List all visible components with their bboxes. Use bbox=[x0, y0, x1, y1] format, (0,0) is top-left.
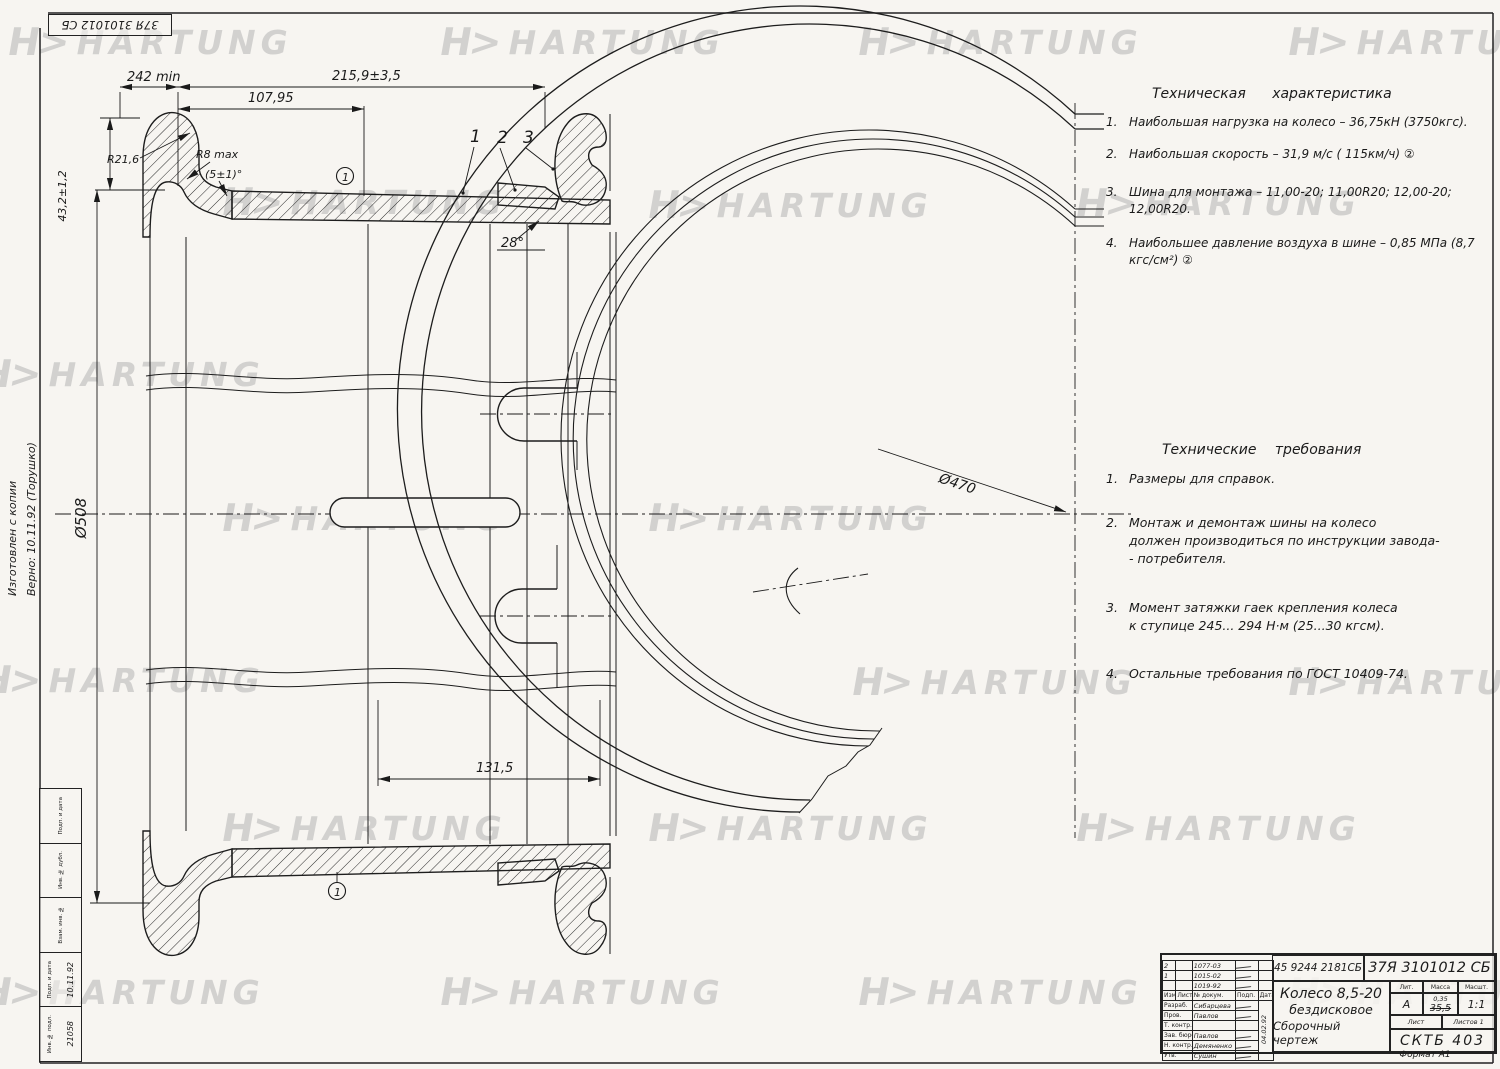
signature-scribble bbox=[1235, 981, 1254, 989]
margin-label: Инв. № подл. bbox=[47, 1015, 53, 1053]
sign-row: Пров. Павлов bbox=[1163, 1011, 1274, 1021]
callout-3: 3 bbox=[523, 128, 534, 148]
corner-designation-text: 37Я 3101012 СБ bbox=[61, 18, 158, 32]
revision-row: 1 1015-02 bbox=[1163, 971, 1274, 981]
dim-242: 242 min bbox=[127, 70, 180, 85]
doc-number: 45 9244 2181СБ bbox=[1274, 962, 1362, 974]
rev-izm bbox=[1163, 981, 1176, 991]
sign-role: Утв. bbox=[1163, 1051, 1193, 1061]
signature-scribble bbox=[1235, 1001, 1254, 1009]
item-text: Размеры для справок. bbox=[1129, 470, 1275, 488]
dim-432: 43,2±1,2 bbox=[56, 170, 69, 221]
title-block: 2 1077-03 1 1015-02 1019-92 Изм Лист № д… bbox=[1160, 953, 1497, 1054]
sign-name: Павлов bbox=[1192, 1011, 1235, 1021]
rev-doc: 1077-03 bbox=[1192, 961, 1235, 971]
sign-name: Павлов bbox=[1192, 1031, 1235, 1041]
margin-cell: Подп. и дата 10.11.92 bbox=[40, 953, 81, 1008]
callout-1: 1 bbox=[470, 127, 481, 147]
item-number: 1. bbox=[1106, 114, 1120, 131]
margin-stamp-column: Подп. и дата Инв. № дубл. Взам. инв. № П… bbox=[39, 788, 82, 1062]
tech-req-item: 1.Размеры для справок. bbox=[1106, 470, 1488, 488]
tech-requirements-title: Технические требования bbox=[1162, 442, 1488, 458]
item-number: 4. bbox=[1106, 665, 1120, 683]
dim-angle5: (5±1)° bbox=[205, 168, 242, 181]
valve-notch bbox=[786, 568, 800, 614]
sheet-cell: Лист bbox=[1390, 1015, 1442, 1029]
margin-cell: Инв. № дубл. bbox=[40, 844, 81, 899]
item-number: 3. bbox=[1106, 184, 1120, 219]
item-number: 3. bbox=[1106, 599, 1120, 635]
tech-req-item: 4.Остальные требования по ГОСТ 10409-74. bbox=[1106, 665, 1488, 683]
lit-value-cell: А bbox=[1390, 993, 1423, 1015]
designation: 37Я 3101012 СБ bbox=[1368, 960, 1490, 976]
mass-old-value: 0,35 bbox=[1433, 995, 1447, 1003]
dim-10795: 107,95 bbox=[248, 91, 294, 106]
rev-izm: 2 bbox=[1163, 961, 1176, 971]
note-line1: Изготовлен с копии bbox=[4, 324, 23, 596]
dim-508: Ø508 bbox=[72, 498, 90, 539]
tech-char-item: 1.Наибольшая нагрузка на колесо – 36,75к… bbox=[1106, 114, 1484, 131]
sign-role: Разраб. bbox=[1163, 1001, 1193, 1011]
item-number: 2. bbox=[1106, 146, 1120, 163]
rev-izm: 1 bbox=[1163, 971, 1176, 981]
rev-doc: 1015-02 bbox=[1192, 971, 1235, 981]
item-text: Остальные требования по ГОСТ 10409-74. bbox=[1129, 665, 1408, 683]
margin-cell: Подп. и дата bbox=[40, 789, 81, 844]
item-text: Наибольшая нагрузка на колесо – 36,75кН … bbox=[1129, 114, 1468, 131]
revision-signature-table: 2 1077-03 1 1015-02 1019-92 Изм Лист № д… bbox=[1162, 960, 1274, 1061]
doc-number-cell: 45 9244 2181СБ bbox=[1272, 955, 1364, 981]
sign-name bbox=[1192, 1021, 1235, 1031]
margin-sign-date: 10.11.92 bbox=[66, 962, 75, 998]
sign-role: Н. контр. bbox=[1163, 1041, 1193, 1051]
drawing-title-cell: Колесо 8,5-20 бездисковое Сборочный черт… bbox=[1272, 981, 1390, 1052]
margin-cell: Взам. инв. № bbox=[40, 898, 81, 953]
tech-req-item: 2.Монтаж и демонтаж шины на колесо долже… bbox=[1106, 514, 1488, 568]
sign-row: Зав. бюро Павлов bbox=[1163, 1031, 1274, 1041]
dim-angle28: 28° bbox=[501, 236, 524, 251]
margin-label: Подп. и дата bbox=[47, 961, 53, 998]
signature-scribble bbox=[1235, 1041, 1254, 1049]
copy-certification-note: Изготовлен с копии Верно: 10.11.92 (Тору… bbox=[4, 324, 48, 596]
signature-scribble bbox=[1235, 1031, 1254, 1039]
organization: СКТБ 403 bbox=[1400, 1033, 1485, 1049]
item-number: 1. bbox=[1106, 470, 1120, 488]
dim-r216: R21,6 bbox=[107, 153, 139, 166]
margin-cell: Инв. № подл. 21058 bbox=[40, 1007, 81, 1061]
sign-row: Н. контр. Демяненко bbox=[1163, 1041, 1274, 1051]
tech-req-item: 3.Момент затяжки гаек крепления колеса к… bbox=[1106, 599, 1488, 635]
revision-row: 2 1077-03 bbox=[1163, 961, 1274, 971]
lit-header: Лит. bbox=[1390, 981, 1423, 993]
margin-label: Взам. инв. № bbox=[58, 906, 64, 944]
vent-slot bbox=[330, 498, 520, 527]
mass-header: Масса bbox=[1423, 981, 1458, 993]
balloon-1-top: 1 bbox=[342, 171, 349, 184]
corner-designation-stamp: 37Я 3101012 СБ bbox=[48, 14, 172, 36]
lit-value: А bbox=[1403, 998, 1411, 1011]
hdr-list: Лист bbox=[1176, 991, 1192, 1001]
rev-doc: 1019-92 bbox=[1192, 981, 1235, 991]
sign-row: Т. контр. bbox=[1163, 1021, 1274, 1031]
signature-scribble bbox=[1235, 1011, 1254, 1019]
dim-r8: R8 max bbox=[196, 148, 239, 161]
margin-label: Инв. № дубл. bbox=[58, 851, 64, 889]
signature-scribble bbox=[1235, 971, 1254, 979]
item-text: Наибольшая скорость – 31,9 м/с ( 115км/ч… bbox=[1129, 146, 1415, 163]
drawing-title-line2: бездисковое bbox=[1289, 1002, 1373, 1017]
sheets-cell: Листов 1 bbox=[1442, 1015, 1495, 1029]
signature-scribble bbox=[1235, 961, 1254, 969]
sign-role: Т. контр. bbox=[1163, 1021, 1193, 1031]
sign-name: Сибарцева bbox=[1192, 1001, 1235, 1011]
item-text: Наибольшее давление воздуха в шине – 0,8… bbox=[1129, 235, 1484, 270]
tech-char-item: 4.Наибольшее давление воздуха в шине – 0… bbox=[1106, 235, 1484, 270]
scale-value-cell: 1:1 bbox=[1458, 993, 1495, 1015]
sign-name: Сушин bbox=[1192, 1051, 1235, 1061]
sign-date-vertical: 04.02.92 bbox=[1260, 1015, 1268, 1044]
tech-char-item: 3.Шина для монтажа – 11,00-20; 11,00R20;… bbox=[1106, 184, 1484, 219]
signature-scribble bbox=[1235, 1051, 1254, 1059]
rim-barrel-lines bbox=[146, 114, 616, 954]
format-note: Формат А1 bbox=[1360, 1050, 1490, 1060]
sign-role: Зав. бюро bbox=[1163, 1031, 1193, 1041]
sign-name: Демяненко bbox=[1192, 1041, 1235, 1051]
revision-row: 1019-92 bbox=[1163, 981, 1274, 991]
drawing-title-line3: Сборочный чертеж bbox=[1273, 1019, 1389, 1047]
scale-value: 1:1 bbox=[1468, 998, 1486, 1011]
dim-1315: 131,5 bbox=[476, 761, 513, 776]
sign-row: Утв. Сушин bbox=[1163, 1051, 1274, 1061]
organization-cell: СКТБ 403 bbox=[1390, 1029, 1495, 1052]
hdr-doc: № докум. bbox=[1192, 991, 1235, 1001]
balloon-1-bottom: 1 bbox=[334, 886, 341, 899]
sign-role: Пров. bbox=[1163, 1011, 1193, 1021]
mass-value-cell: 0,35 35,5 bbox=[1423, 993, 1458, 1015]
dim-470: Ø470 bbox=[936, 470, 978, 497]
tech-requirements-block: Технические требования 1.Размеры для спр… bbox=[1106, 442, 1488, 683]
callout-2: 2 bbox=[497, 128, 508, 148]
margin-inventory-number: 21058 bbox=[66, 1021, 75, 1046]
drawing-title-line1: Колесо 8,5-20 bbox=[1280, 986, 1382, 1002]
tech-char-item: 2.Наибольшая скорость – 31,9 м/с ( 115км… bbox=[1106, 146, 1484, 163]
tech-characteristics-block: Техническая характеристика 1.Наибольшая … bbox=[1106, 86, 1484, 269]
item-number: 4. bbox=[1106, 235, 1120, 270]
item-text: Шина для монтажа – 11,00-20; 11,00R20; 1… bbox=[1129, 184, 1484, 219]
dim-215: 215,9±3,5 bbox=[332, 69, 401, 84]
note-line2: Верно: 10.11.92 (Торушко) bbox=[23, 324, 42, 596]
rim-section-bottom bbox=[143, 831, 610, 955]
sign-row: Разраб. Сибарцева 04.02.92 bbox=[1163, 1001, 1274, 1011]
designation-cell: 37Я 3101012 СБ bbox=[1364, 955, 1495, 981]
table-header-row: Изм Лист № докум. Подп. Дата bbox=[1163, 991, 1274, 1001]
item-text: Момент затяжки гаек крепления колеса к с… bbox=[1129, 599, 1398, 635]
tech-characteristics-title: Техническая характеристика bbox=[1152, 86, 1484, 102]
break-line bbox=[799, 799, 812, 813]
hdr-izm: Изм bbox=[1163, 991, 1176, 1001]
item-text: Монтаж и демонтаж шины на колесо должен … bbox=[1129, 514, 1440, 568]
scanned-drawing-page: H>HARTUNG H>HARTUNG H>HARTUNG H>HARTUNG … bbox=[0, 0, 1500, 1069]
margin-label: Подп. и дата bbox=[58, 797, 64, 834]
hdr-podp: Подп. bbox=[1235, 991, 1258, 1001]
item-number: 2. bbox=[1106, 514, 1120, 568]
mass-value: 35,5 bbox=[1430, 1003, 1451, 1014]
scale-header: Масшт. bbox=[1458, 981, 1495, 993]
